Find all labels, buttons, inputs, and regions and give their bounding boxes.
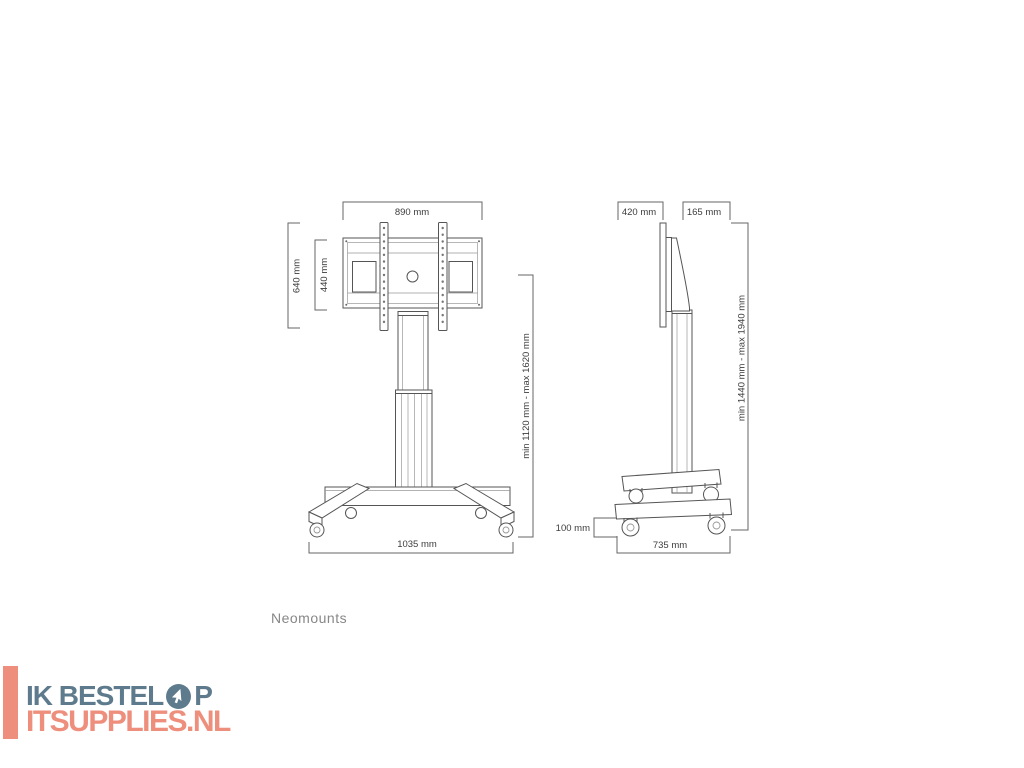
watermark-line2: ITSUPPLIES.NL: [26, 708, 230, 736]
stand-dimension-diagram: 890 mm 640 mm 440 mm min 1120 mm - max 1…: [0, 0, 1024, 768]
side-rear-caster-left: [629, 489, 643, 503]
front-view: 890 mm 640 mm 440 mm min 1120 mm - max 1…: [288, 202, 533, 553]
side-base-depth-label: 735 mm: [653, 540, 687, 551]
front-lift-column: [396, 312, 433, 488]
side-base: [615, 470, 732, 537]
side-caster-right: [708, 517, 725, 534]
side-depth-profile-label: 165 mm: [687, 207, 721, 218]
plate-opening-right: [449, 262, 473, 293]
front-caster-left: [310, 523, 324, 537]
front-rear-caster-left: [346, 508, 357, 519]
side-caster-height-bracket: [594, 518, 617, 537]
side-mount-plate: [660, 223, 690, 327]
side-height-range-label: min 1440 mm - max 1940 mm: [737, 295, 748, 421]
front-height-inner-label: 440 mm: [319, 258, 330, 292]
front-rear-caster-right: [476, 508, 487, 519]
side-view: 420 mm 165 mm min 1440 mm - max 1940 mm …: [556, 202, 748, 553]
brand-text: Neomounts: [271, 609, 347, 627]
front-height-range-label: min 1120 mm - max 1620 mm: [521, 333, 532, 459]
front-base: [309, 484, 514, 538]
side-depth-plate-label: 420 mm: [622, 207, 656, 218]
side-lift-column: [672, 310, 692, 493]
plate-opening-left: [353, 262, 377, 293]
front-mount-plate: [343, 238, 482, 308]
side-arm: [672, 238, 690, 311]
front-base-width-label: 1035 mm: [397, 539, 437, 550]
side-rear-foot: [622, 470, 721, 492]
front-height-outer-label: 640 mm: [292, 259, 303, 293]
front-width-label: 890 mm: [395, 207, 429, 218]
front-caster-right: [499, 523, 513, 537]
side-caster-left: [622, 519, 639, 536]
plate-center-hole: [407, 271, 418, 282]
side-caster-height-label: 100 mm: [556, 523, 590, 534]
watermark-accent-bar: [3, 666, 18, 739]
